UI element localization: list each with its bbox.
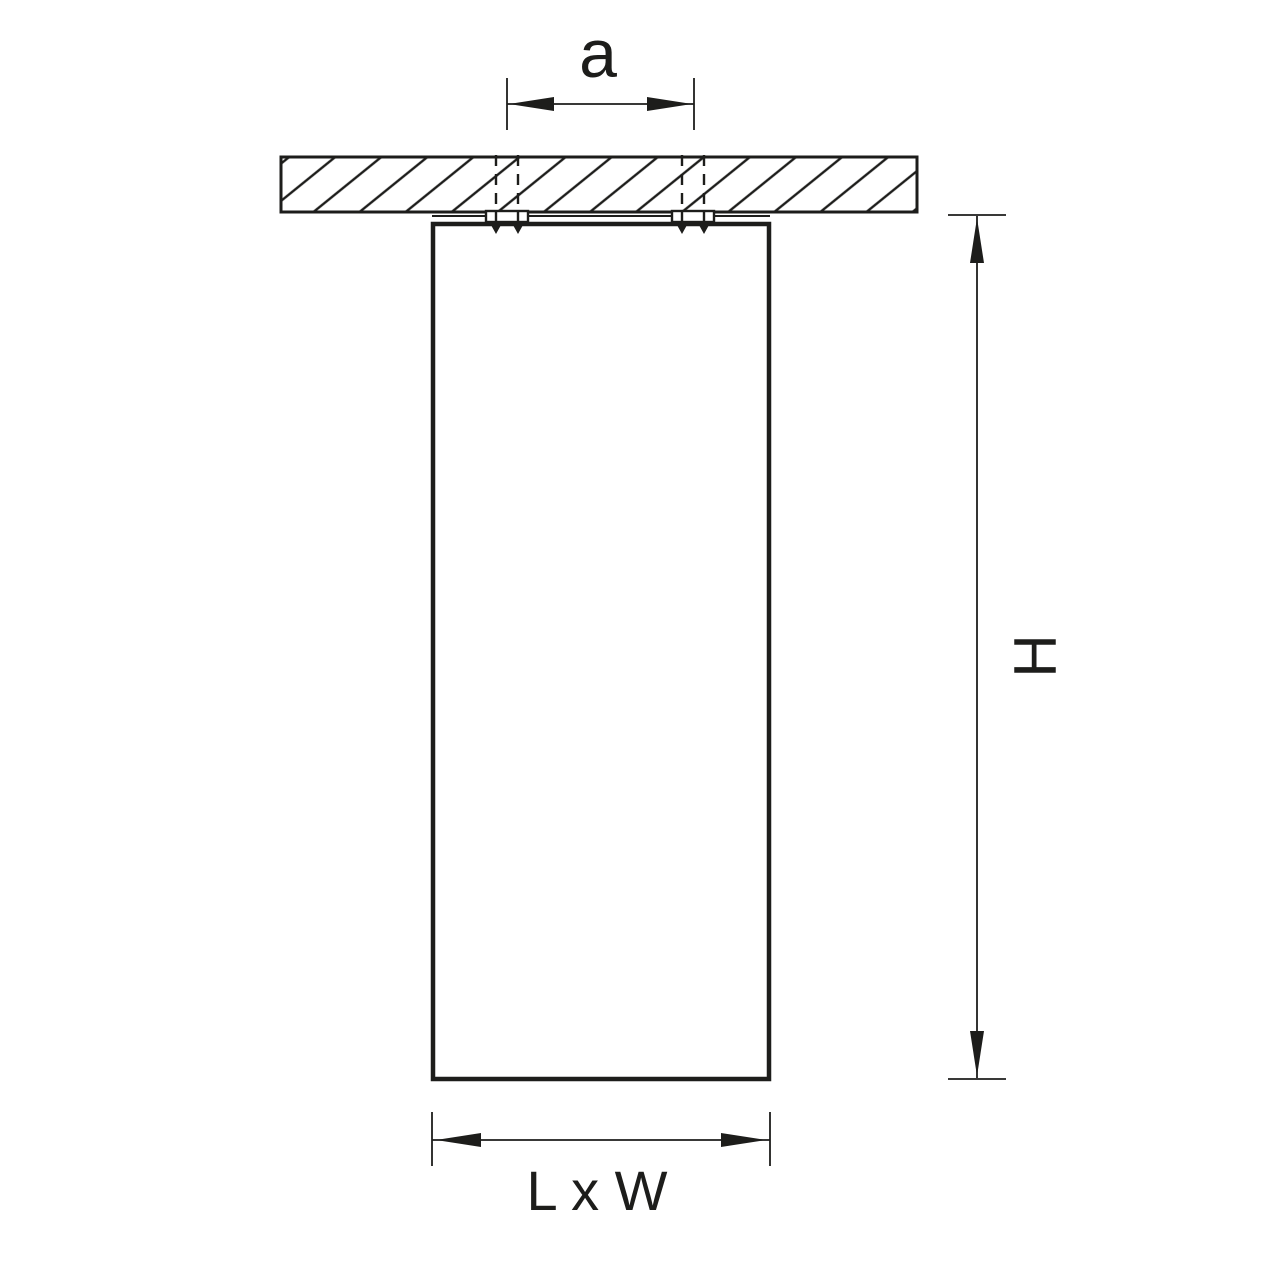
arrowhead-right-icon [721,1133,766,1147]
dimension-lxw: L x W [432,1112,770,1222]
arrowhead-right-icon [647,97,692,111]
arrowhead-down-icon [970,1031,984,1076]
dimension-h-label: H [1002,634,1069,677]
luminaire-body [433,224,769,1079]
dimension-a: a [507,16,694,130]
arrowhead-left-icon [509,97,554,111]
arrowhead-left-icon [436,1133,481,1147]
dimension-a-label: a [579,16,617,92]
dimension-h: H [948,215,1069,1079]
drawing-canvas: a H L x W [0,0,1280,1280]
dimension-lxw-label: L x W [526,1159,667,1222]
ceiling-slab-hatched [281,157,917,212]
luminaire-dimension-diagram: a H L x W [0,0,1280,1280]
arrowhead-up-icon [970,218,984,263]
screw-fixing-box-right [672,211,714,222]
screw-fixing-box-left [486,211,528,222]
